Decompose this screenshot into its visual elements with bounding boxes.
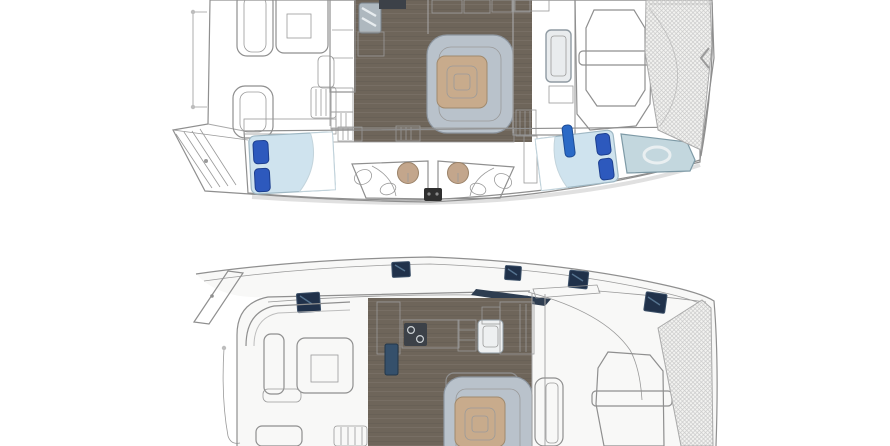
dinette-bottom: saloon dinette with silver sofa and tan … — [444, 377, 532, 446]
hull-window — [385, 344, 398, 375]
aft-berth-pillow-1 — [253, 140, 269, 164]
heads-divider-box — [424, 188, 442, 201]
dinette-table — [455, 397, 505, 446]
fwd-berth-pillow-2 — [598, 158, 614, 181]
cabin-hatch-frame — [546, 30, 571, 82]
galley-stove — [379, 0, 406, 9]
deck-hatch-1 — [392, 262, 411, 278]
yacht-floorplan-figure: Upper plan: saloon deck and starboard hu… — [0, 0, 890, 446]
fwd-berth-pillow-1 — [595, 133, 611, 156]
galley-stove — [404, 323, 427, 346]
galley-sink-unit — [478, 320, 503, 353]
dinette-top: saloon dinette with silver U-sofa and ta… — [427, 35, 513, 133]
dinette-table — [437, 56, 487, 108]
aft-berth-pillow-2 — [254, 168, 270, 192]
plan-bottom: Lower plan: deck and saloon of second la… — [194, 257, 717, 446]
